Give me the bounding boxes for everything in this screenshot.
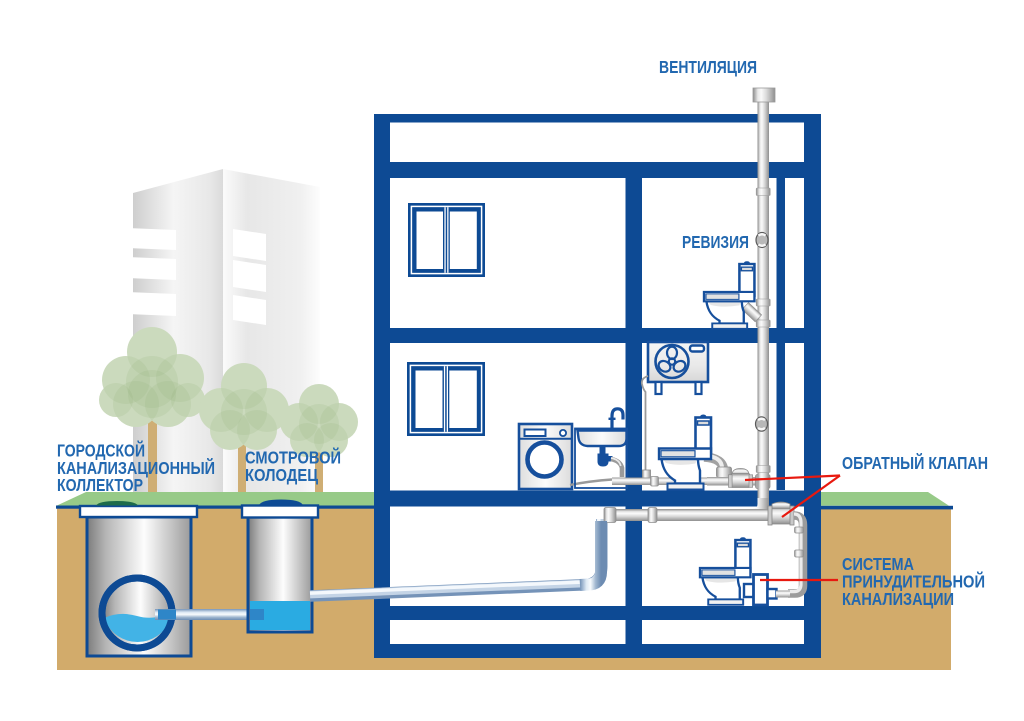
svg-text:КОЛЛЕКТОР: КОЛЛЕКТОР (57, 475, 143, 495)
svg-text:КОЛОДЕЦ: КОЛОДЕЦ (245, 465, 318, 485)
svg-text:ОБРАТНЫЙ КЛАПАН: ОБРАТНЫЙ КЛАПАН (842, 452, 988, 473)
svg-text:РЕВИЗИЯ: РЕВИЗИЯ (682, 232, 749, 252)
svg-text:ВЕНТИЛЯЦИЯ: ВЕНТИЛЯЦИЯ (659, 57, 757, 77)
svg-text:КАНАЛИЗАЦИИ: КАНАЛИЗАЦИИ (842, 589, 954, 609)
